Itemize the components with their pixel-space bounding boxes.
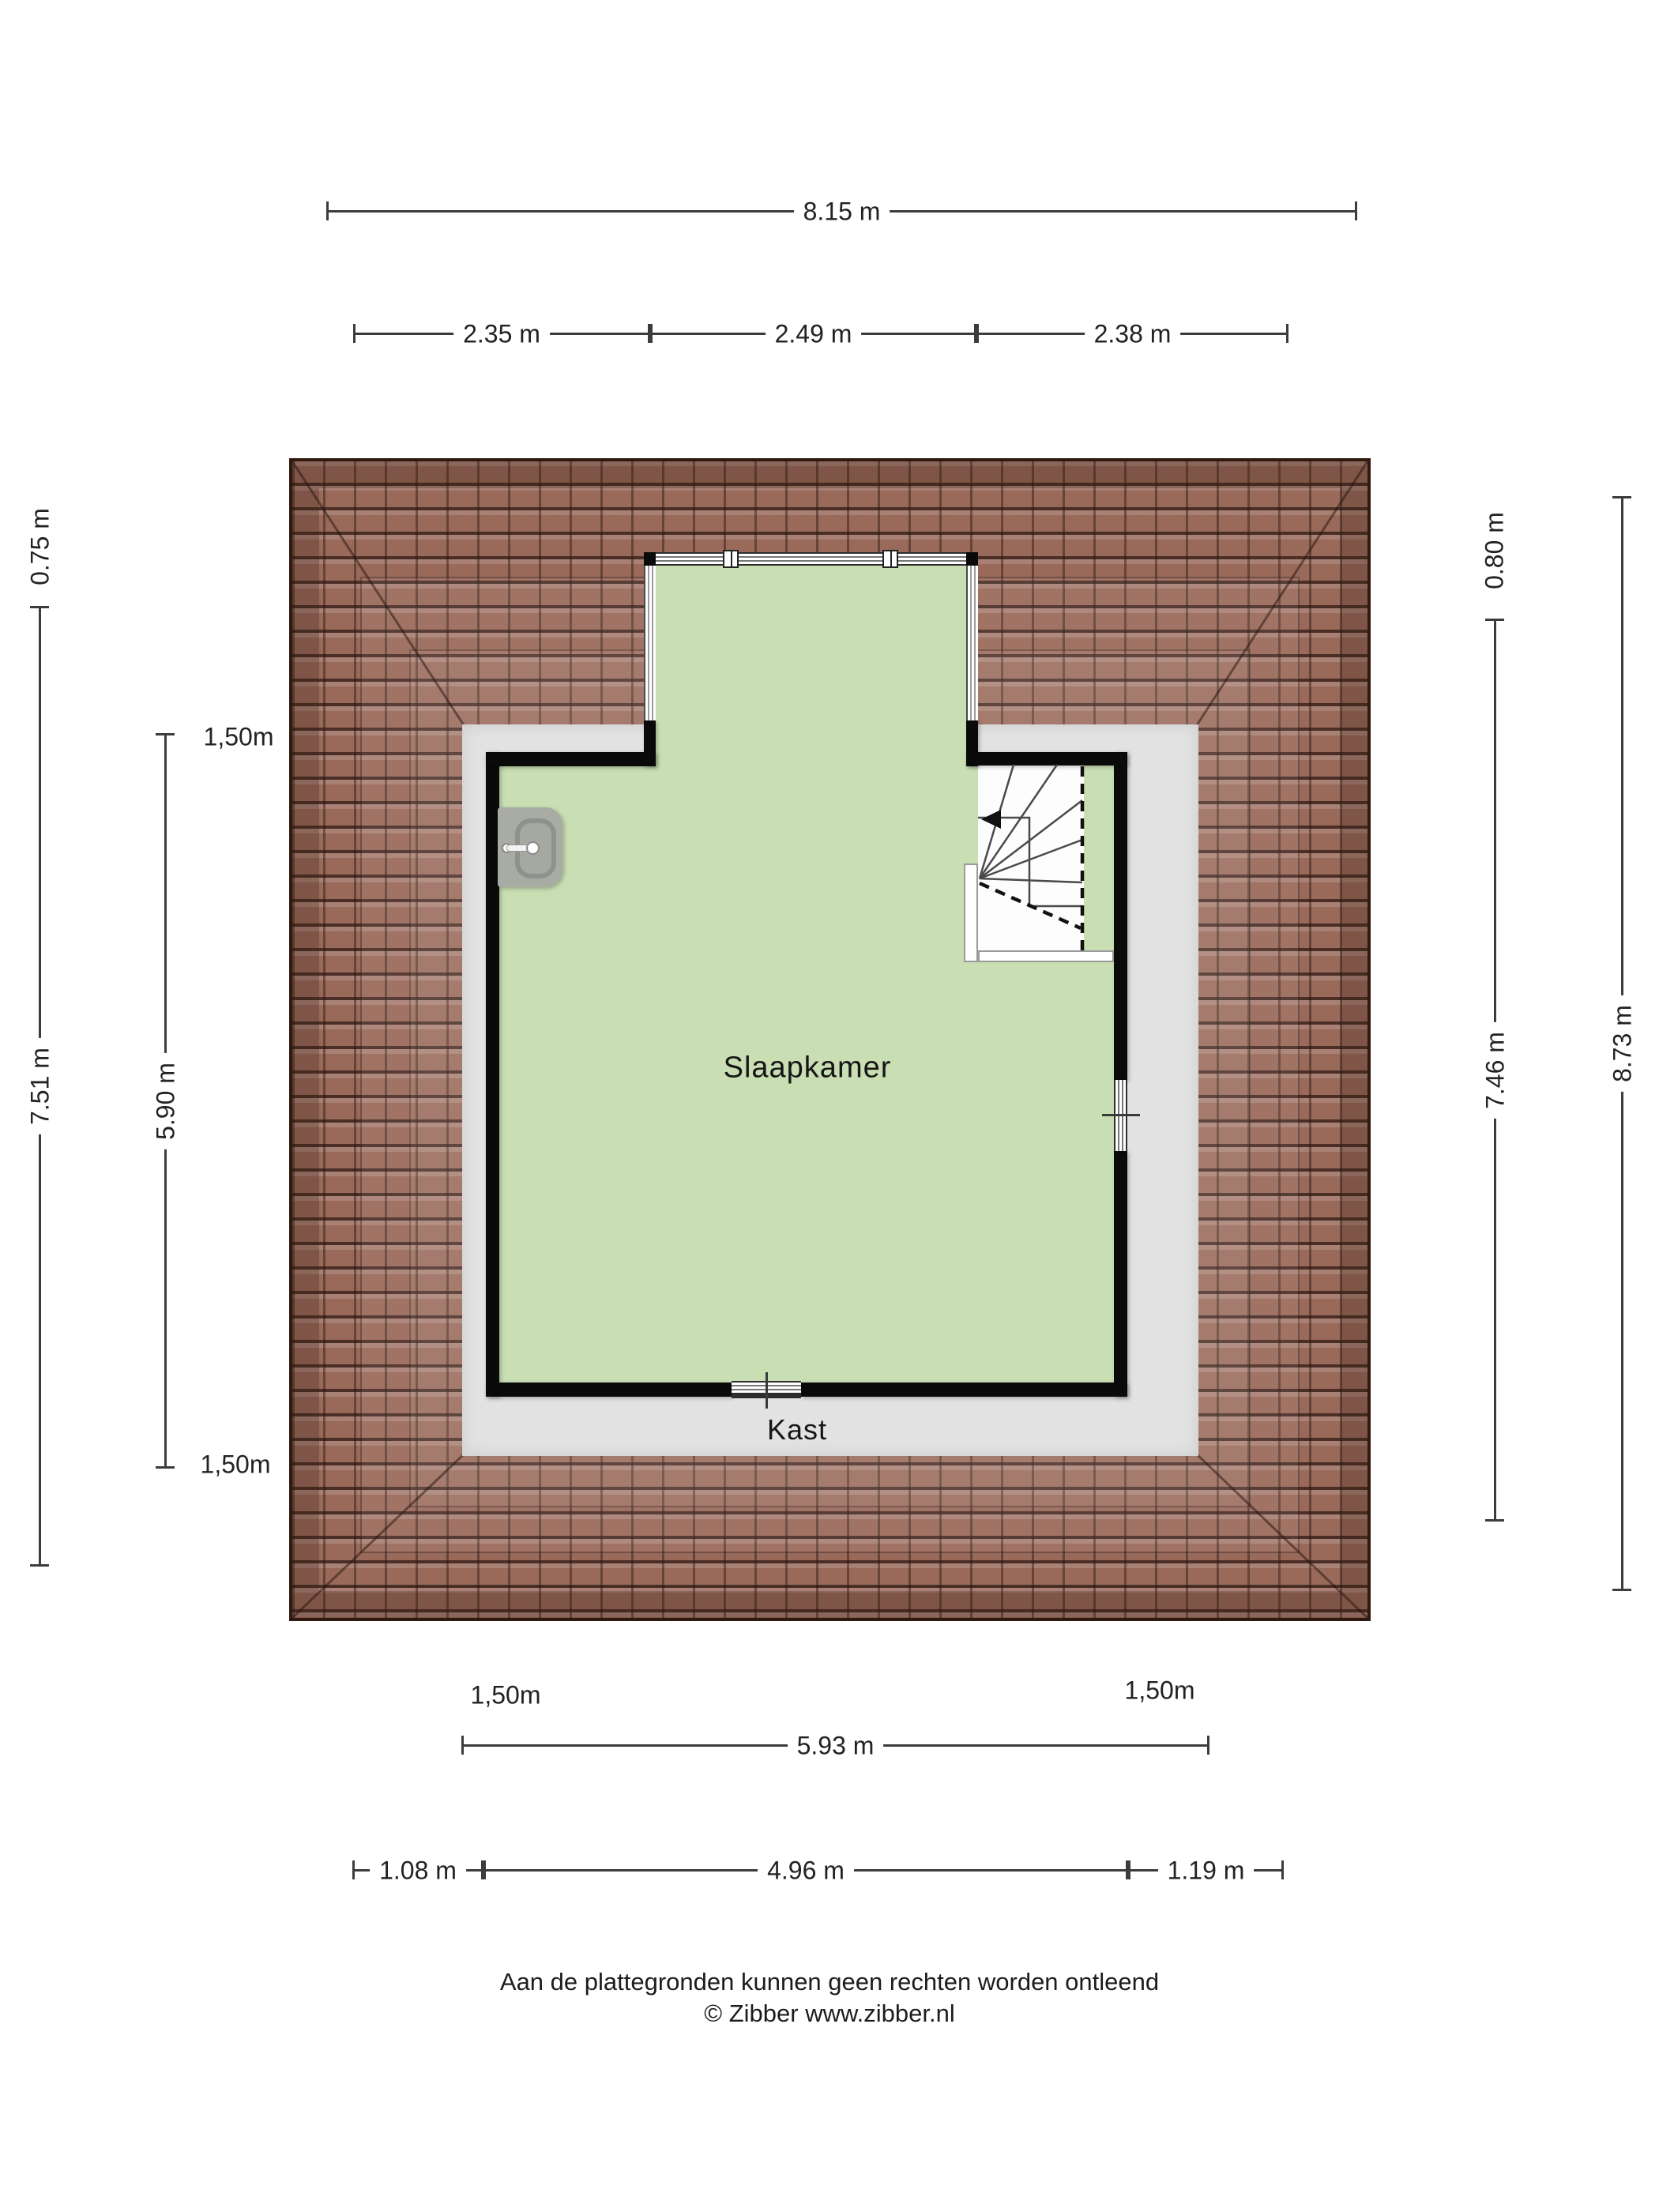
dimension-label: 1.19 m bbox=[1158, 1854, 1255, 1887]
dimension-label: 2.35 m bbox=[453, 318, 550, 350]
dimension-label: 8.15 m bbox=[794, 195, 890, 228]
footer-credit: © Zibber www.zibber.nl bbox=[0, 1999, 1659, 2028]
wall-bottom-left bbox=[486, 1382, 732, 1397]
wall-dormer-post-left bbox=[644, 720, 656, 766]
dimension-right-total: 8.73 m bbox=[1621, 496, 1623, 1591]
dimension-label: 2.49 m bbox=[766, 318, 862, 350]
wall-right-lower bbox=[1114, 1151, 1127, 1397]
stair-balustrade-left bbox=[964, 863, 978, 962]
dimension-left-inner: 5.90 m bbox=[164, 733, 167, 1469]
footer-disclaimer: Aan de plattegronden kunnen geen rechten… bbox=[0, 1968, 1659, 1996]
dimension-label: 5.93 m bbox=[788, 1729, 884, 1762]
dimension-label: 4.96 m bbox=[758, 1854, 854, 1887]
dimension-left-overhang: 0.75 m bbox=[26, 508, 55, 585]
stairs-icon bbox=[978, 752, 1136, 973]
stairs-direction-arrow bbox=[981, 810, 1001, 829]
wall-bottom-right bbox=[801, 1382, 1127, 1397]
knee-height-top-left: 1,50m bbox=[204, 723, 274, 752]
dimension-label: 8.73 m bbox=[1606, 995, 1638, 1092]
dormer-wall-right bbox=[966, 566, 978, 720]
dimension-left-total: 7.51 m bbox=[39, 606, 41, 1567]
knee-height-bottom-left-2: 1,50m bbox=[471, 1681, 541, 1710]
dormer-window bbox=[656, 552, 966, 566]
bedroom-label: Slaapkamer bbox=[724, 1051, 892, 1085]
dimension-label: 1.08 m bbox=[370, 1854, 466, 1887]
dimension-top-total: 8.15 m bbox=[326, 210, 1357, 213]
dimension-bottom-seg-3: 1.19 m bbox=[1128, 1869, 1284, 1872]
dimension-top-seg-2: 2.49 m bbox=[650, 333, 976, 335]
dimension-bottom-seg-2: 4.96 m bbox=[483, 1869, 1128, 1872]
dimension-right-inner: 7.46 m bbox=[1494, 619, 1496, 1522]
dimension-label: 7.51 m bbox=[24, 1038, 56, 1134]
dimension-top-seg-3: 2.38 m bbox=[976, 333, 1288, 335]
closet-label: Kast bbox=[767, 1413, 827, 1446]
dormer-window-mullion-2 bbox=[882, 550, 898, 568]
dimension-label: 5.90 m bbox=[149, 1053, 182, 1149]
sink bbox=[498, 807, 562, 887]
dimension-bottom-inner: 5.93 m bbox=[461, 1744, 1209, 1747]
window-corner-post-right bbox=[966, 552, 978, 566]
dimension-label: 2.38 m bbox=[1085, 318, 1181, 350]
dimension-label: 7.46 m bbox=[1479, 1022, 1511, 1119]
floorplan-canvas: Slaapkamer Kast 8.15 m 2.35 m 2.49 m 2.3… bbox=[0, 0, 1659, 2212]
dormer-floor bbox=[656, 564, 966, 766]
window-corner-post-left bbox=[644, 552, 656, 566]
dimension-bottom-seg-1: 1.08 m bbox=[352, 1869, 483, 1872]
sink-tap bbox=[526, 841, 540, 855]
knee-height-bottom-right-2: 1,50m bbox=[1125, 1676, 1195, 1706]
dormer-window-mullion-1 bbox=[723, 550, 739, 568]
dormer-wall-left bbox=[644, 566, 656, 720]
dimension-right-overhang: 0.80 m bbox=[1480, 512, 1510, 589]
dimension-top-seg-1: 2.35 m bbox=[353, 333, 650, 335]
closet-door-centerline bbox=[766, 1372, 768, 1409]
knee-height-bottom-left: 1,50m bbox=[201, 1450, 271, 1480]
side-window-centerline bbox=[1102, 1114, 1140, 1116]
wall-top-left bbox=[486, 752, 656, 766]
